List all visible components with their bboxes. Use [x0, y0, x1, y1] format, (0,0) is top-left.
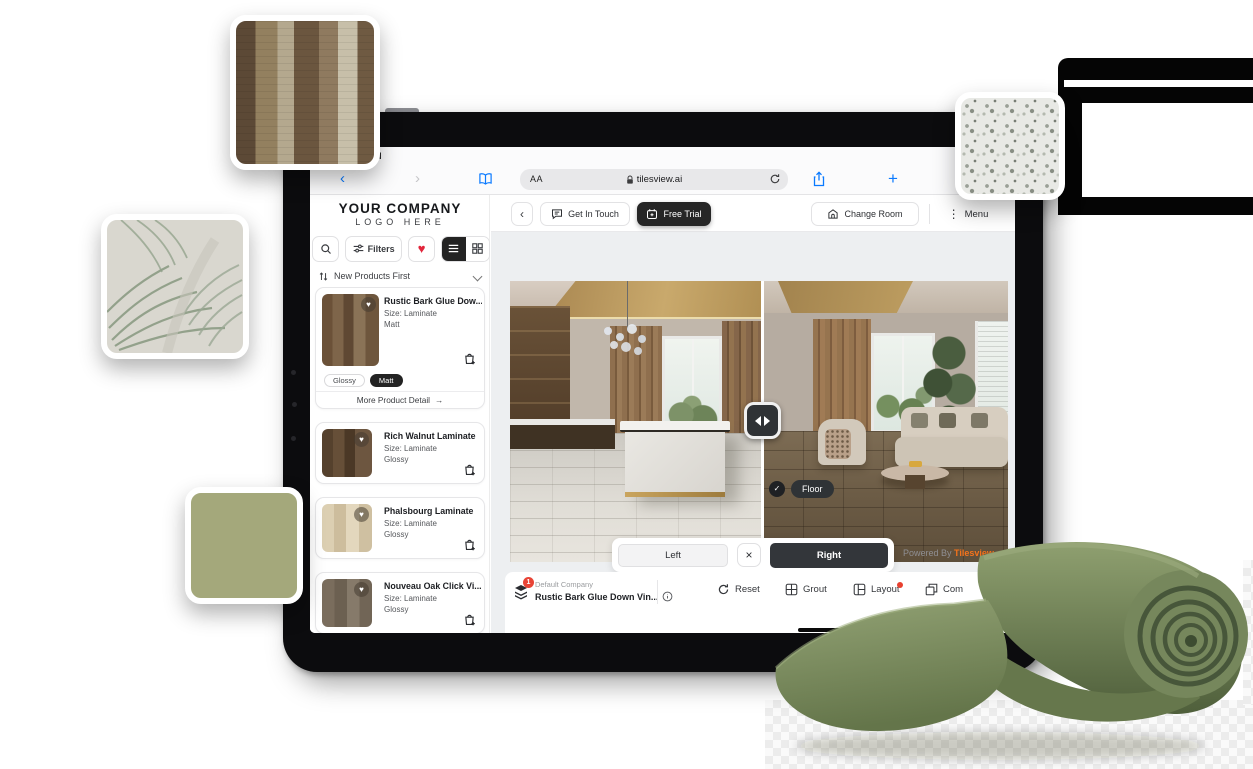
room-left-kitchen — [510, 281, 763, 562]
product-finish: Glossy — [384, 605, 408, 614]
product-card[interactable]: ♥ Nouveau Oak Click Vi... Size: Laminate… — [315, 572, 485, 633]
marketing-composite: M ‹ › AA tilesview.ai — [0, 0, 1253, 769]
bookmarks-icon[interactable] — [478, 172, 493, 186]
browser-back-icon[interactable]: ‹ — [340, 169, 345, 189]
filters-button[interactable]: Filters — [345, 236, 402, 262]
selected-product-name: Rustic Bark Glue Down Vin... — [535, 592, 658, 602]
background-device-screen — [1082, 103, 1253, 197]
reset-icon — [717, 583, 730, 596]
filters-label: Filters — [368, 244, 395, 254]
floor-badge[interactable]: Floor — [791, 480, 834, 498]
green-solid-swatch — [185, 487, 303, 604]
add-to-cart-icon[interactable] — [463, 352, 476, 366]
sort-dropdown[interactable]: New Products First — [318, 267, 482, 285]
filter-icon — [353, 243, 364, 254]
compare-close-button[interactable]: × — [737, 543, 761, 567]
tablet-camera-dot — [291, 436, 296, 441]
palm-leaf-art — [107, 220, 243, 353]
sort-icon — [318, 271, 329, 282]
chat-icon — [551, 208, 563, 220]
search-icon — [320, 243, 332, 255]
add-to-cart-icon[interactable] — [463, 538, 476, 552]
grid-view-button[interactable] — [466, 237, 489, 261]
product-name: Rich Walnut Laminate — [384, 431, 482, 441]
wood-grain-overlay — [236, 21, 374, 164]
add-to-cart-icon[interactable] — [463, 463, 476, 477]
favorites-button[interactable]: ♥ — [408, 236, 435, 262]
reload-icon[interactable] — [769, 173, 781, 185]
menu-label: Menu — [965, 209, 989, 220]
notification-badge: 1 — [523, 577, 534, 588]
product-name: Nouveau Oak Click Vi... — [384, 581, 482, 591]
wood-plank-swatch — [230, 15, 380, 170]
sofa-cushion — [971, 413, 988, 428]
product-card[interactable]: ♥ Rustic Bark Glue Dow... Size: Laminate… — [315, 287, 485, 409]
product-name: Phalsbourg Laminate — [384, 506, 482, 516]
menu-button[interactable]: ⋮ Menu — [937, 202, 999, 226]
terrazzo-swatch — [955, 92, 1065, 200]
compare-left-button[interactable]: Left — [618, 544, 728, 567]
finish-toggle: Glossy Matt — [316, 372, 484, 391]
product-thumbnail: ♥ — [322, 579, 372, 627]
product-size: Size: Laminate — [384, 444, 437, 453]
list-view-button[interactable] — [442, 237, 465, 261]
get-in-touch-label: Get In Touch — [568, 209, 619, 219]
get-in-touch-button[interactable]: Get In Touch — [540, 202, 630, 226]
change-room-label: Change Room — [844, 209, 902, 219]
compare-slider-handle[interactable] — [744, 402, 781, 439]
reset-label: Reset — [735, 584, 760, 595]
sofa-cushion — [939, 413, 956, 428]
background-device-corner — [1058, 58, 1253, 215]
header-divider — [929, 204, 930, 224]
url-text: tilesview.ai — [637, 174, 682, 185]
tablet-camera-dot — [292, 402, 297, 407]
back-icon: ‹ — [520, 207, 524, 221]
favorite-heart-icon[interactable]: ♥ — [354, 432, 369, 447]
heart-icon: ♥ — [418, 241, 426, 256]
room-right-living — [763, 281, 1008, 562]
share-icon[interactable] — [812, 171, 826, 187]
product-size: Size: Laminate — [384, 309, 437, 318]
info-icon[interactable] — [662, 591, 673, 602]
room-visualization[interactable]: ✓ Floor — [510, 281, 1008, 562]
kitchen-island — [625, 429, 725, 497]
product-finish: Matt — [384, 320, 400, 329]
gold-tray — [909, 461, 922, 467]
kitchen-counter — [510, 419, 615, 449]
grid-view-icon — [472, 243, 483, 254]
free-trial-button[interactable]: Free Trial — [637, 202, 711, 226]
app-header: ‹ Get In Touch Free Trial Change Room — [491, 195, 1015, 232]
logo-line2: LOGO HERE — [310, 217, 490, 227]
free-trial-label: Free Trial — [663, 209, 701, 219]
add-to-cart-icon[interactable] — [463, 613, 476, 627]
room-icon — [827, 208, 839, 220]
toolbar-divider — [657, 580, 658, 604]
browser-forward-icon[interactable]: › — [415, 169, 420, 189]
browser-toolbar: ‹ › AA tilesview.ai — [310, 165, 1015, 195]
view-toggle — [441, 236, 490, 262]
slider-right-arrow-icon — [764, 416, 770, 426]
product-finish: Glossy — [384, 455, 408, 464]
product-thumbnail: ♥ — [322, 429, 372, 477]
change-room-button[interactable]: Change Room — [811, 202, 919, 226]
sofa-cushion — [911, 413, 928, 428]
kebab-icon: ⋮ — [948, 207, 960, 221]
logo-line1: YOUR COMPANY — [310, 201, 490, 216]
more-product-detail-link[interactable]: More Product Detail → — [316, 391, 484, 408]
product-size: Size: Laminate — [384, 594, 437, 603]
product-list[interactable]: ♥ Rustic Bark Glue Dow... Size: Laminate… — [310, 287, 490, 633]
product-sidebar: YOUR COMPANY LOGO HERE Filters ♥ — [310, 195, 490, 633]
finish-matt-button[interactable]: Matt — [370, 374, 403, 387]
address-bar[interactable]: AA tilesview.ai — [520, 169, 788, 190]
chandelier — [604, 327, 612, 335]
company-name: Default Company — [535, 580, 593, 589]
product-size: Size: Laminate — [384, 519, 437, 528]
search-button[interactable] — [312, 236, 339, 262]
tablet-camera-dot — [291, 370, 296, 375]
chevron-down-icon — [474, 272, 482, 280]
patterned-throw — [825, 429, 851, 459]
product-thumbnail: ♥ — [322, 504, 372, 552]
product-thumbnail: ♥ — [322, 294, 379, 366]
more-detail-label: More Product Detail — [357, 395, 430, 405]
slider-left-arrow-icon — [755, 416, 761, 426]
product-name: Rustic Bark Glue Dow... — [384, 296, 482, 306]
favorite-heart-icon[interactable]: ♥ — [354, 507, 369, 522]
background-device-strip — [1064, 80, 1253, 87]
leaf-pattern-swatch — [101, 214, 249, 359]
selected-product[interactable]: Rustic Bark Glue Down Vin... — [535, 591, 673, 602]
surface-check-icon[interactable]: ✓ — [769, 481, 785, 497]
finish-glossy-button[interactable]: Glossy — [324, 374, 365, 387]
living-ceiling-wood — [778, 281, 913, 313]
kitchen-ceiling-wood — [545, 281, 763, 319]
lock-icon — [626, 175, 634, 185]
list-view-icon — [448, 243, 459, 254]
arrow-right-icon: → — [435, 395, 443, 405]
calendar-plus-icon — [646, 208, 658, 220]
reset-button[interactable]: Reset — [717, 583, 760, 596]
coffee-table — [881, 465, 949, 481]
company-logo: YOUR COMPANY LOGO HERE — [310, 201, 490, 227]
green-carpet-roll — [770, 538, 1253, 769]
product-card[interactable]: ♥ Phalsbourg Laminate Size: Laminate Glo… — [315, 497, 485, 559]
new-tab-icon[interactable]: + — [888, 169, 898, 189]
favorite-heart-icon[interactable]: ♥ — [361, 297, 376, 312]
product-finish: Glossy — [384, 530, 408, 539]
header-back-button[interactable]: ‹ — [511, 202, 533, 226]
chandelier-stem — [627, 281, 628, 331]
status-bar: M — [310, 147, 1015, 165]
sidebar-controls: Filters ♥ — [312, 235, 490, 262]
sort-label: New Products First — [334, 271, 410, 281]
product-card[interactable]: ♥ Rich Walnut Laminate Size: Laminate Gl… — [315, 422, 485, 484]
favorite-heart-icon[interactable]: ♥ — [354, 582, 369, 597]
